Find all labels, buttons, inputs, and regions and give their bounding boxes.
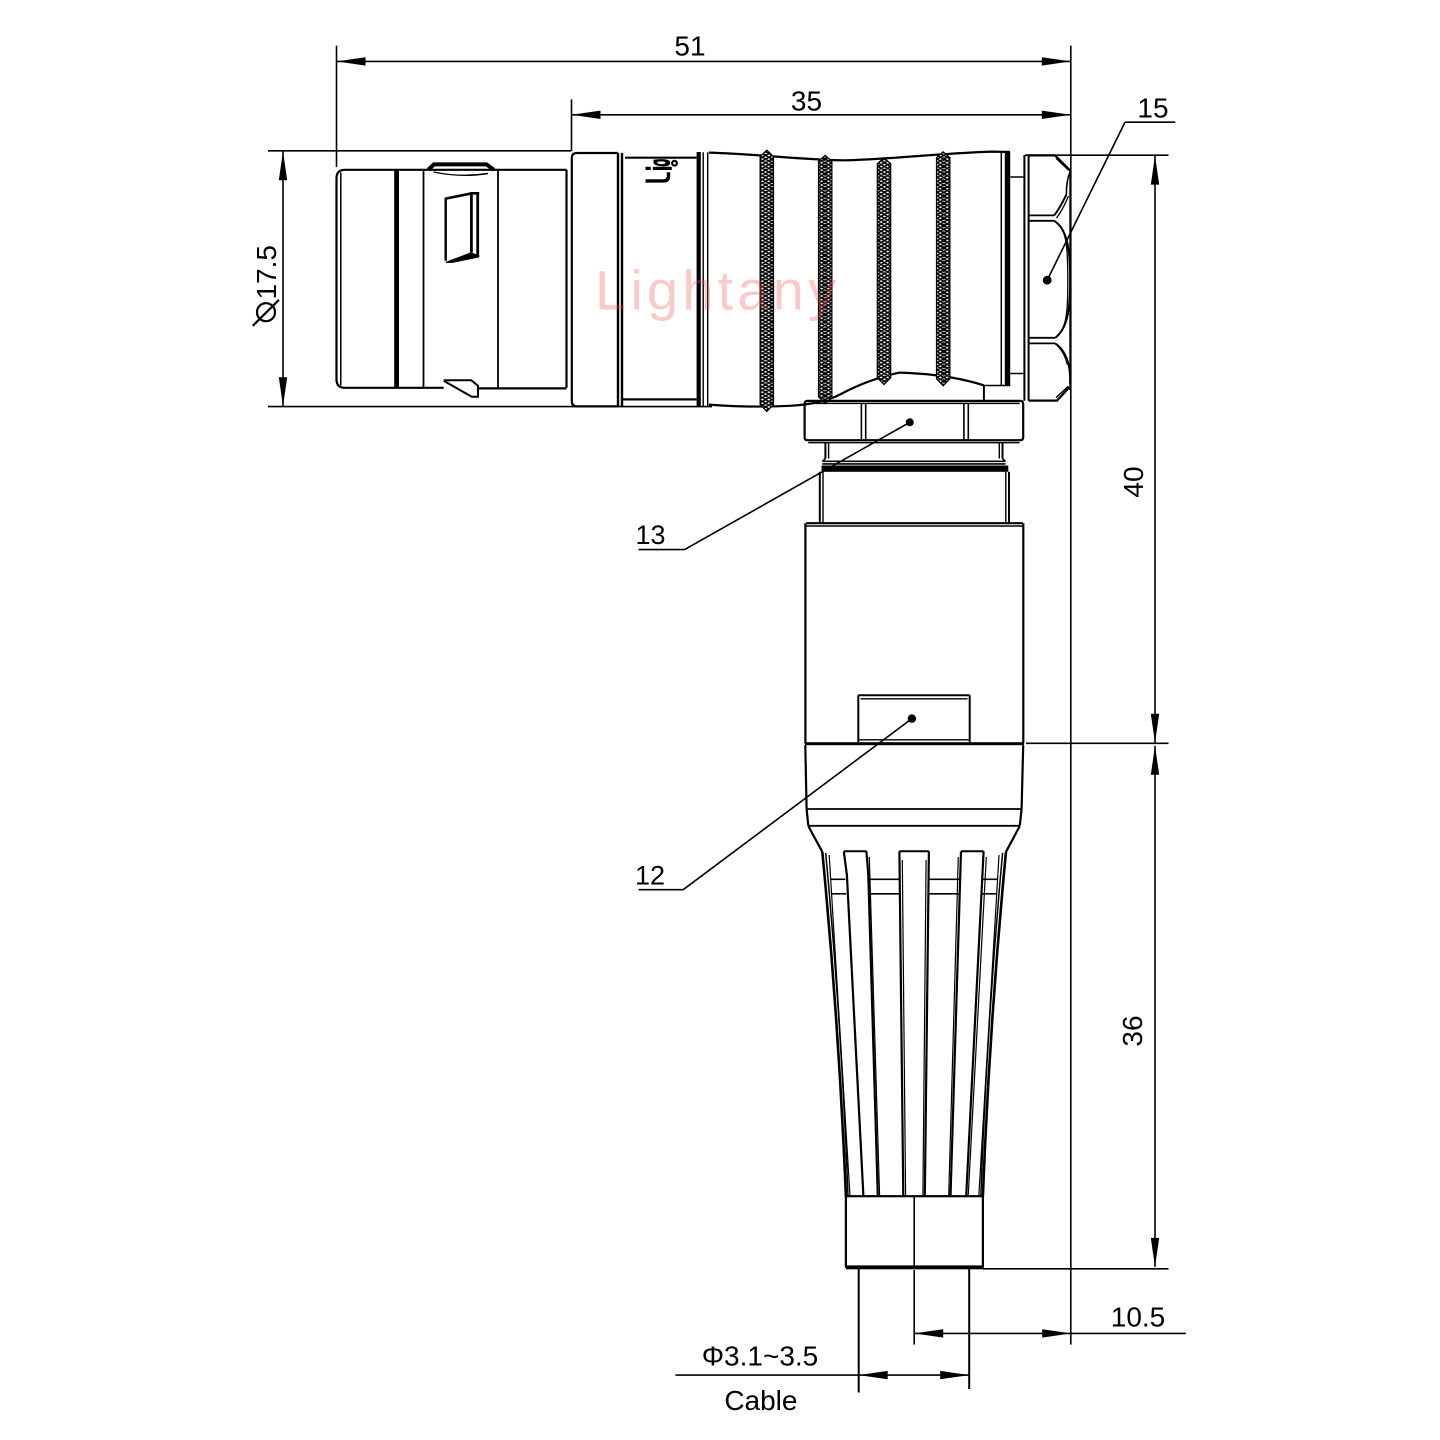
svg-text:Lightany: Lightany	[595, 259, 840, 322]
svg-text:13: 13	[635, 520, 665, 550]
svg-text:40: 40	[1118, 466, 1149, 497]
svg-text:Cable: Cable	[724, 1385, 797, 1416]
svg-text:15: 15	[1137, 93, 1168, 124]
svg-text:51: 51	[674, 30, 705, 61]
svg-text:Φ3.1~3.5: Φ3.1~3.5	[702, 1340, 819, 1371]
svg-text:35: 35	[791, 85, 822, 116]
svg-text:12: 12	[635, 861, 665, 891]
svg-text:10.5: 10.5	[1111, 1302, 1166, 1333]
svg-text:17.5: 17.5	[251, 245, 282, 300]
svg-text:36: 36	[1117, 1015, 1148, 1046]
